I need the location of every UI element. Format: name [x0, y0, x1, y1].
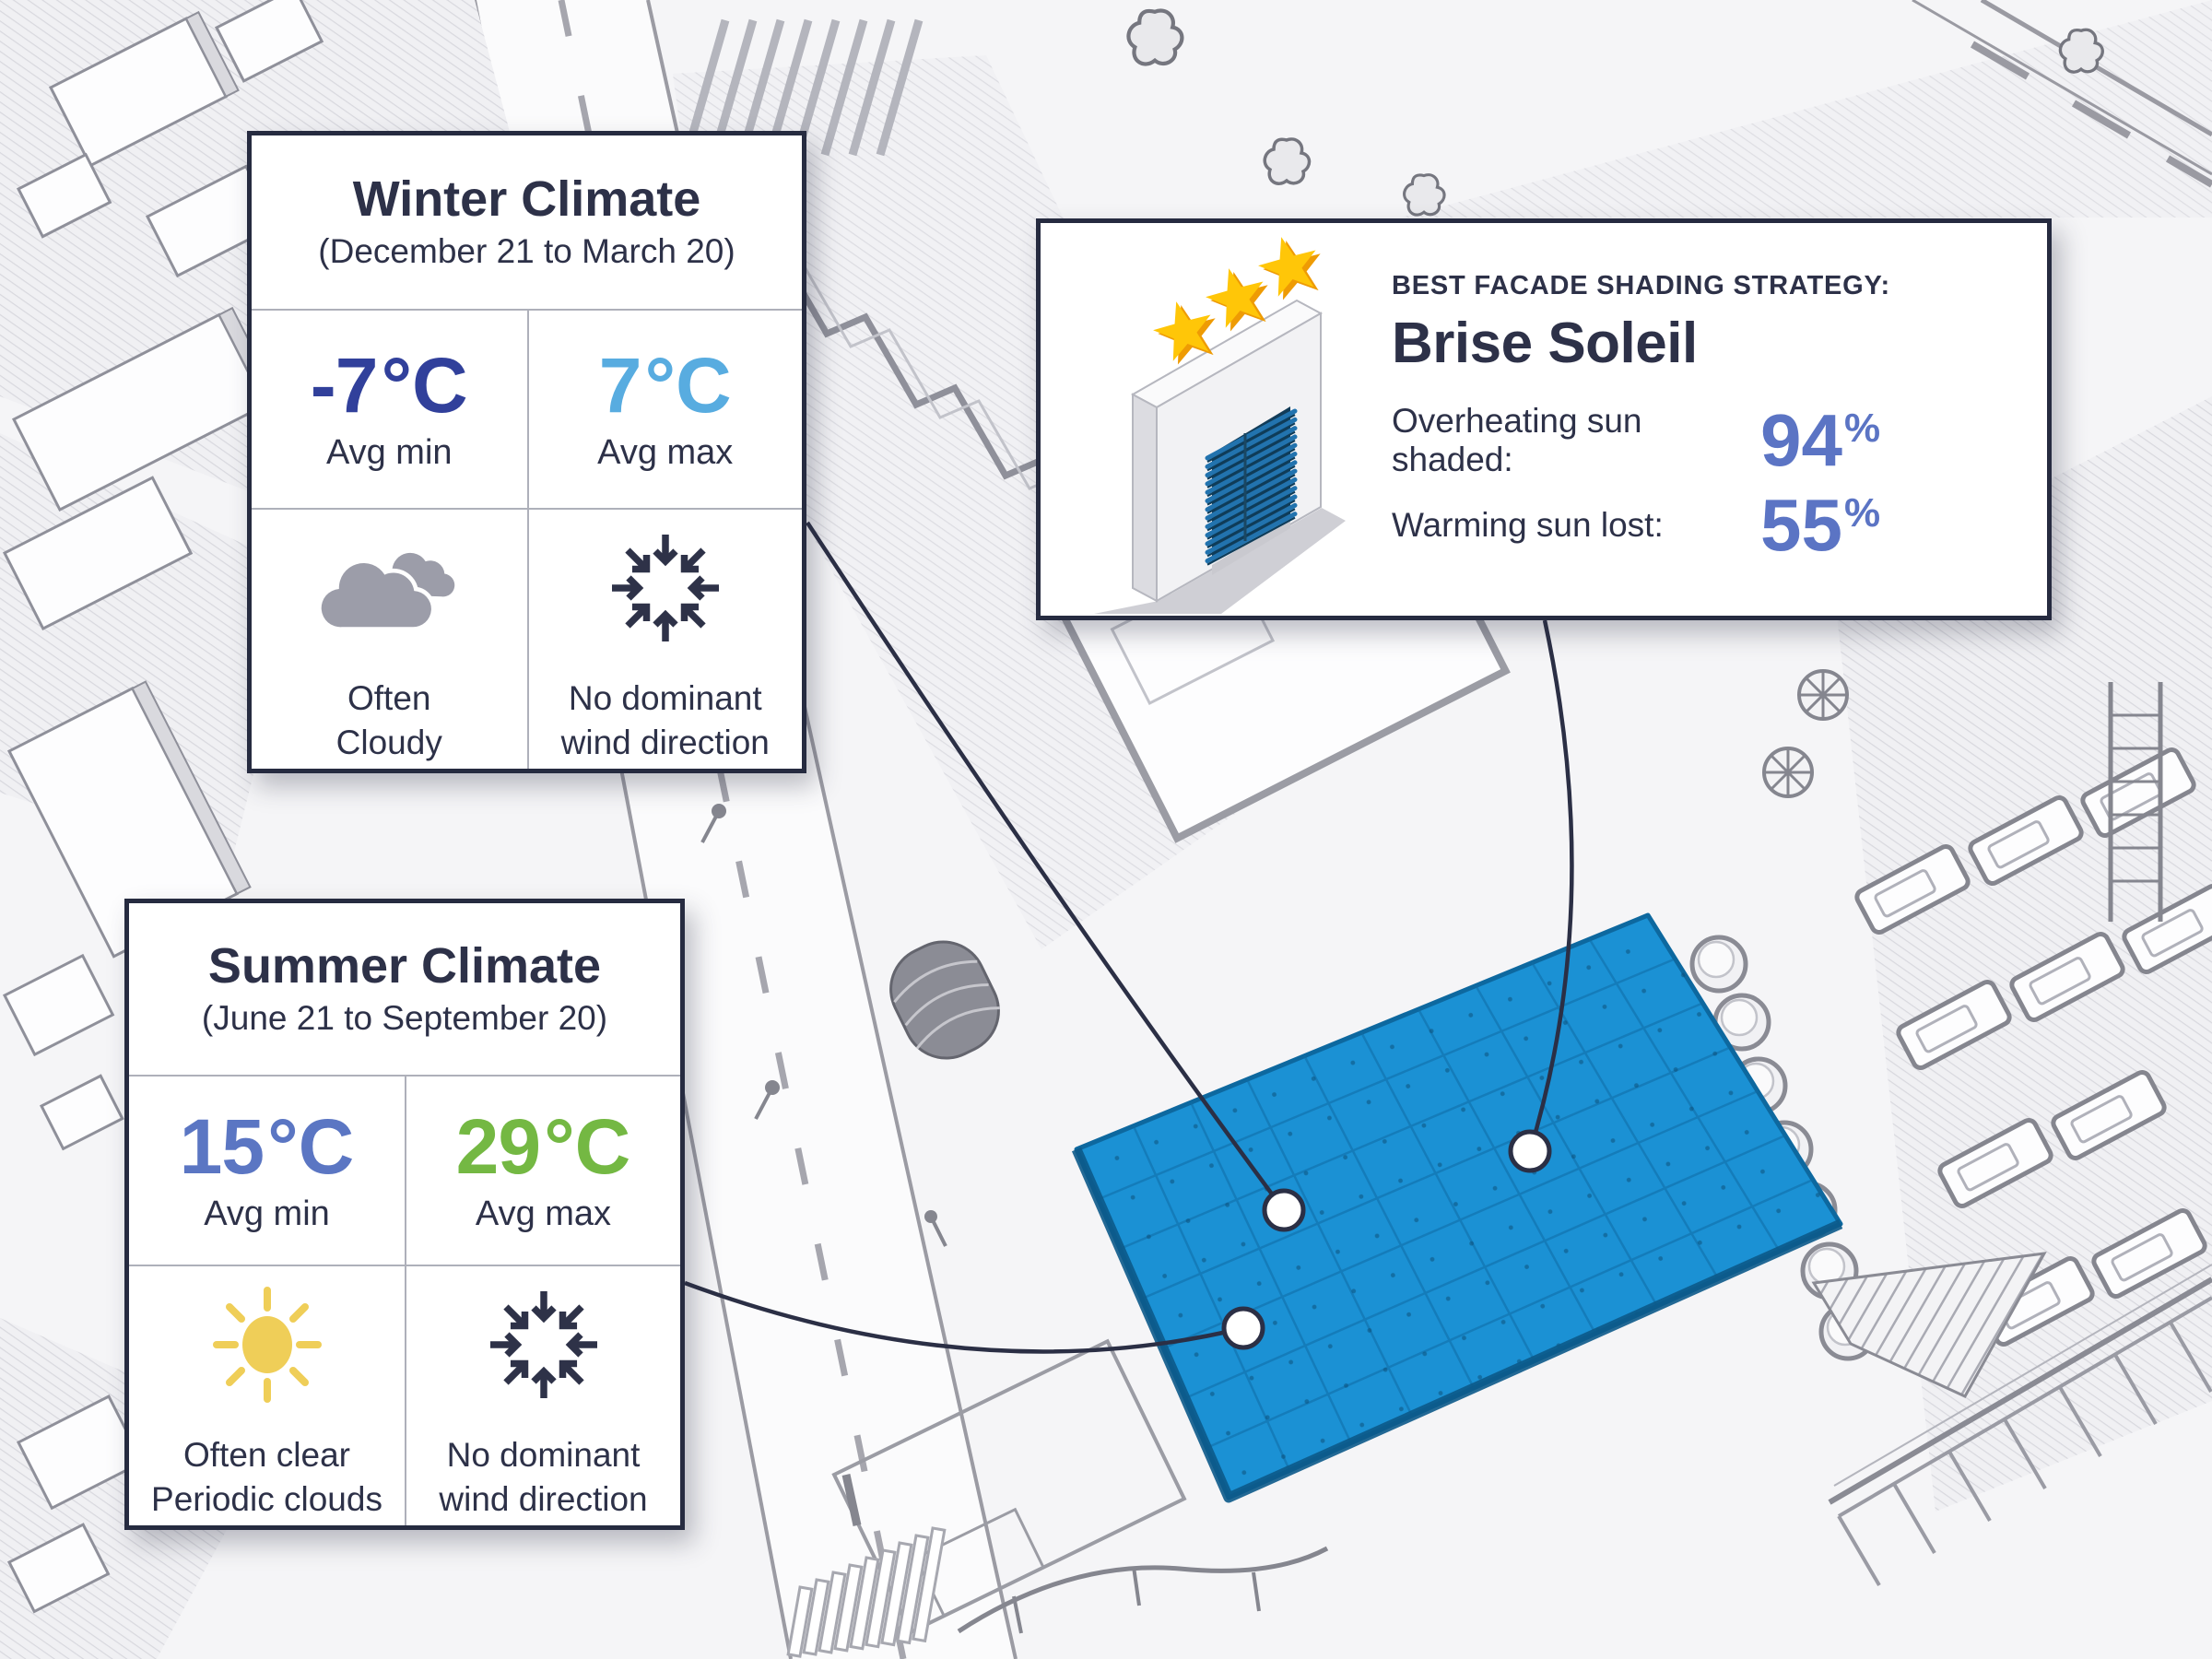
summer-avg-max-cell: 29°C Avg max — [405, 1075, 680, 1265]
metric-value: 55% — [1760, 488, 1945, 562]
strategy-text-block: BEST FACADE SHADING STRATEGY: Brise Sole… — [1392, 271, 1945, 566]
winter-avg-min-label: Avg min — [326, 433, 453, 473]
summer-sky-label: Often clearPeriodic clouds — [151, 1433, 382, 1521]
summer-card-subtitle: (June 21 to September 20) — [129, 999, 680, 1038]
metric-row: Overheating sun shaded: 94% — [1392, 400, 1945, 481]
shading-strategy-card: BEST FACADE SHADING STRATEGY: Brise Sole… — [1036, 218, 2052, 620]
strategy-metrics: Overheating sun shaded: 94% Warming sun … — [1392, 400, 1945, 566]
strategy-eyebrow: BEST FACADE SHADING STRATEGY: — [1392, 271, 1945, 301]
winter-avg-min-value: -7°C — [311, 347, 468, 424]
metric-row: Warming sun lost: 55% — [1392, 485, 1945, 566]
summer-avg-max-label: Avg max — [476, 1194, 611, 1234]
winter-card-subtitle: (December 21 to March 20) — [252, 232, 802, 271]
clouds-icon — [313, 514, 465, 662]
winter-avg-min-cell: -7°C Avg min — [252, 309, 527, 508]
winter-card-title: Winter Climate — [252, 173, 802, 226]
converging-arrows-icon — [475, 1271, 613, 1418]
winter-climate-card: Winter Climate (December 21 to March 20)… — [247, 131, 806, 773]
summer-card-grid: 15°C Avg min 29°C Avg max — [129, 1075, 680, 1525]
winter-wind-cell: No dominantwind direction — [527, 508, 803, 769]
metric-value: 94% — [1760, 404, 1945, 477]
summer-card-title: Summer Climate — [129, 940, 680, 993]
winter-sky-label: OftenCloudy — [336, 677, 442, 764]
sun-icon — [198, 1271, 336, 1418]
metric-label: Warming sun lost: — [1392, 506, 1760, 545]
summer-climate-card: Summer Climate (June 21 to September 20)… — [124, 899, 685, 1530]
summer-avg-min-value: 15°C — [180, 1108, 355, 1185]
metric-label: Overheating sun shaded: — [1392, 402, 1760, 479]
infographic-canvas: Winter Climate (December 21 to March 20)… — [0, 0, 2212, 1659]
site-marker-strategy — [1511, 1132, 1549, 1171]
summer-card-header: Summer Climate (June 21 to September 20) — [129, 903, 680, 1075]
winter-card-grid: -7°C Avg min 7°C Avg max OftenCloudy — [252, 309, 802, 769]
winter-sky-cell: OftenCloudy — [252, 508, 527, 769]
summer-wind-label: No dominantwind direction — [439, 1433, 647, 1521]
winter-avg-max-cell: 7°C Avg max — [527, 309, 803, 508]
strategy-title: Brise Soleil — [1392, 311, 1945, 376]
converging-arrows-icon — [596, 514, 735, 662]
brise-soleil-illustration — [1041, 223, 1409, 616]
summer-avg-max-value: 29°C — [456, 1108, 631, 1185]
winter-card-header: Winter Climate (December 21 to March 20) — [252, 135, 802, 309]
winter-avg-max-value: 7°C — [599, 347, 732, 424]
summer-wind-cell: No dominantwind direction — [405, 1265, 680, 1525]
summer-avg-min-label: Avg min — [204, 1194, 330, 1234]
summer-sky-cell: Often clearPeriodic clouds — [129, 1265, 405, 1525]
summer-avg-min-cell: 15°C Avg min — [129, 1075, 405, 1265]
site-marker-summer — [1224, 1309, 1263, 1347]
winter-avg-max-label: Avg max — [597, 433, 733, 473]
site-marker-winter — [1265, 1191, 1303, 1230]
winter-wind-label: No dominantwind direction — [561, 677, 770, 764]
